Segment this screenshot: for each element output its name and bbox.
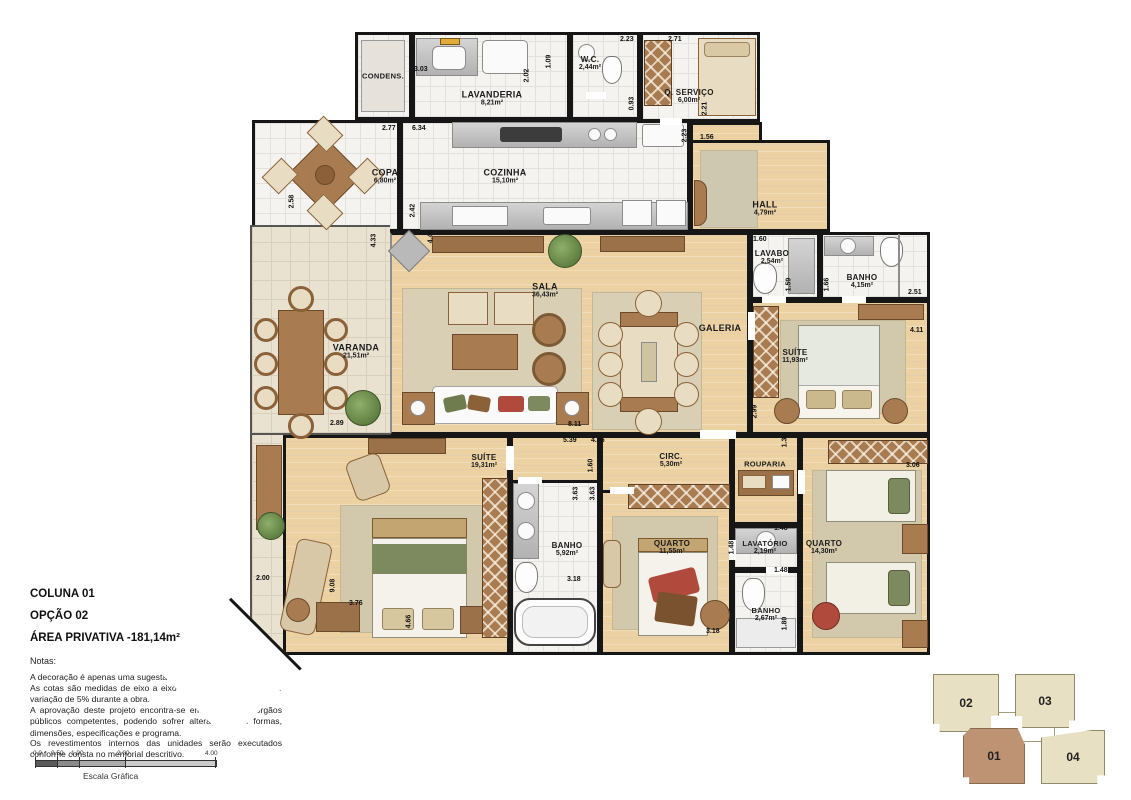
dimension: 2.99: [751, 405, 758, 419]
dimension: 1.48: [728, 541, 735, 555]
opcao-title: OPÇÃO 02: [30, 610, 88, 622]
sofa-pillow: [498, 396, 524, 412]
suite2-wardrobe: [482, 478, 508, 638]
side-table-lamp: [564, 400, 580, 416]
dimension: 1.59: [785, 278, 792, 292]
dimension: 2.23: [620, 36, 634, 43]
building-key-plan: 02 03 01 04: [905, 660, 1120, 790]
notes-title: Notas:: [30, 656, 56, 666]
suite1-dresser: [858, 304, 924, 320]
varanda-chair: [324, 318, 348, 342]
quarto2-pillow: [888, 570, 910, 606]
suite1-pillow: [842, 390, 872, 409]
nightstand: [902, 620, 928, 648]
quarto1-wardrobe: [628, 484, 730, 509]
door-opening: [586, 92, 606, 99]
copa-table-center: [315, 165, 335, 185]
dimension: 0.93: [628, 97, 635, 111]
coluna-title: COLUNA 01: [30, 588, 95, 600]
dimension: 3.06: [906, 462, 920, 469]
varanda-chair: [288, 413, 314, 439]
kitchen-cooktop: [500, 127, 562, 142]
round-side-table: [700, 600, 730, 630]
scale-tick-label: 4.00: [205, 750, 218, 757]
dimension: 2.89: [330, 420, 344, 427]
varanda-chair: [324, 352, 348, 376]
hall-rug: [700, 150, 758, 228]
keyplan-unit-label: 04: [1066, 750, 1079, 764]
condenser-unit: [361, 40, 405, 112]
quarto1-bed-headboard: [638, 538, 708, 552]
coffee-table: [452, 334, 518, 370]
scale-tick-mark: [79, 757, 80, 768]
dimension: 1.80: [781, 617, 788, 631]
scale-tick-label: 2.00: [117, 750, 130, 757]
plant: [345, 390, 381, 426]
rattan-chair: [532, 352, 566, 386]
dining-chair: [598, 352, 623, 377]
dimension: 4.66: [591, 437, 605, 444]
rattan-chair: [532, 313, 566, 347]
dimension: 1.60: [587, 459, 594, 473]
dimension: 3.63: [572, 487, 579, 501]
scale-tick-label: 1.00: [71, 750, 84, 757]
dining-chair: [598, 382, 623, 407]
door-opening: [660, 118, 682, 125]
dimension: 2.71: [668, 36, 682, 43]
dimension: 4.33: [370, 234, 377, 248]
dining-chair: [635, 408, 662, 435]
round-table: [286, 598, 310, 622]
dining-chair: [674, 382, 699, 407]
quarto2-chair: [812, 602, 840, 630]
suite1-pillow: [806, 390, 836, 409]
scale-segment: [36, 761, 58, 766]
dimension: 2.21: [701, 102, 708, 116]
door-opening: [700, 430, 736, 439]
nightstand: [774, 398, 800, 424]
tv-console: [432, 236, 544, 253]
shower-glass: [898, 234, 900, 297]
dimension: 2.00: [256, 575, 270, 582]
hall-console: [694, 180, 707, 226]
keyplan-unit-04: 04: [1041, 730, 1105, 784]
door-opening: [798, 470, 805, 494]
scale-caption: Escala Gráfica: [83, 771, 138, 781]
floor-plan-page: CONDENS. LAVANDERIA8,21m² W.C.2,44m² Q. …: [0, 0, 1131, 800]
kitchen-appliance: [622, 200, 652, 226]
plant: [548, 234, 582, 268]
keyplan-unit-01: 01: [963, 728, 1025, 784]
scale-tick-mark: [35, 757, 36, 768]
keyplan-unit-label: 01: [987, 749, 1000, 763]
banho-suite-sink: [517, 522, 535, 540]
dining-chair: [674, 352, 699, 377]
keyplan-unit-label: 02: [959, 696, 972, 710]
dimension: 3.63: [589, 487, 596, 501]
dimension: 6.34: [412, 125, 426, 132]
laundry-sink: [432, 46, 466, 70]
service-bed-pillow: [704, 42, 750, 57]
fridge: [642, 124, 684, 147]
dimension: 2.23: [681, 129, 688, 143]
quarto1-throw-brown: [654, 591, 698, 626]
door-opening: [842, 296, 866, 303]
quarto2-pillow: [888, 478, 910, 514]
scale-tick-label: 0.50: [51, 750, 64, 757]
keyplan-unit-02: 02: [933, 674, 999, 732]
door-opening: [518, 477, 542, 484]
banho-suite-toilet: [515, 562, 538, 593]
service-wardrobe: [644, 40, 672, 106]
stove: [452, 206, 508, 226]
banho-social-sink: [840, 238, 856, 254]
dimension: 4.40: [427, 230, 434, 244]
dimension: 2.02: [523, 69, 530, 83]
wc-sink: [578, 44, 595, 61]
dimension: 1.38: [781, 434, 788, 448]
varanda-chair: [254, 352, 278, 376]
lavabo-toilet: [753, 263, 777, 294]
door-opening: [748, 312, 755, 340]
dimension: 3.03: [414, 66, 428, 73]
scale-tick-mark: [57, 757, 58, 768]
scale-segment: [58, 761, 80, 766]
banho3-toilet: [742, 578, 765, 611]
keyplan-unit-03: 03: [1015, 674, 1075, 728]
door-opening: [610, 487, 634, 494]
washing-machine: [482, 40, 528, 74]
nightstand: [902, 524, 928, 554]
bathtub-inner: [522, 606, 588, 638]
dining-chair: [635, 290, 662, 317]
kitchen-top-sink: [588, 128, 601, 141]
keyplan-unit-label: 03: [1038, 694, 1051, 708]
table-runner: [641, 342, 657, 382]
scale-tick-label: 0.0: [33, 750, 42, 757]
area-privativa-title: ÁREA PRIVATIVA -181,14m²: [30, 632, 180, 644]
double-sink: [543, 207, 591, 225]
dimension: 8.11: [568, 421, 581, 428]
dimension: 2.58: [288, 195, 295, 209]
dimension: 1.56: [700, 134, 714, 141]
suite2-shelf: [368, 438, 446, 454]
quarto1-chair: [603, 540, 621, 588]
dimension: 3.76: [349, 600, 363, 607]
dining-chair: [674, 322, 699, 347]
scale-bar: 0.0 0.50 1.00 2.00 4.00 Escala Gráfica: [33, 750, 233, 784]
varanda-table: [278, 310, 324, 415]
dimension: 4.11: [910, 327, 923, 334]
utility-box: [440, 38, 460, 45]
scale-tick-mark: [125, 757, 126, 768]
dimension: 9.08: [329, 579, 336, 593]
dining-chair: [598, 322, 623, 347]
dimension: 4.66: [405, 615, 412, 629]
suite2-blanket: [372, 544, 467, 574]
side-table-lamp: [410, 400, 426, 416]
dimension: 3.18: [567, 576, 581, 583]
scale-segment: [80, 761, 126, 766]
kitchen-top-sink: [604, 128, 617, 141]
rouparia-shelf-item: [772, 475, 790, 489]
dimension: 1.60: [753, 236, 767, 243]
varanda-chair: [288, 286, 314, 312]
sideboard: [600, 236, 685, 252]
scale-tick-mark: [215, 757, 216, 768]
suite1-wardrobe: [753, 306, 779, 398]
armchair: [448, 292, 488, 325]
banho-suite-sink: [517, 492, 535, 510]
lavatorio-sink: [756, 531, 776, 551]
dimension: 1.48: [774, 525, 788, 532]
suite2-pillow: [422, 608, 454, 630]
dimension: 2.42: [409, 204, 416, 218]
rouparia-shelf-item: [742, 475, 766, 489]
dimension: 1.48: [774, 567, 788, 574]
door-opening: [762, 296, 786, 303]
dimension: 1.09: [545, 55, 552, 69]
dimension: 3.18: [706, 628, 720, 635]
dimension: 2.51: [908, 289, 922, 296]
kitchen-appliance: [656, 200, 686, 226]
sofa-pillow: [528, 396, 550, 411]
dimension: 1.66: [823, 278, 830, 292]
suite2-bed-headboard: [372, 518, 467, 538]
plant: [257, 512, 285, 540]
wc-toilet: [602, 56, 622, 84]
varanda-chair: [254, 318, 278, 342]
armchair: [494, 292, 534, 325]
dimension: 4.66: [797, 617, 804, 631]
nightstand: [882, 398, 908, 424]
varanda-chair: [254, 386, 278, 410]
quarto2-wardrobe: [828, 440, 928, 464]
scale-segment: [126, 761, 216, 766]
door-opening: [506, 446, 514, 470]
scale-bar-segments: [35, 760, 217, 767]
dimension: 5.39: [563, 437, 577, 444]
dimension: 2.77: [382, 125, 396, 132]
